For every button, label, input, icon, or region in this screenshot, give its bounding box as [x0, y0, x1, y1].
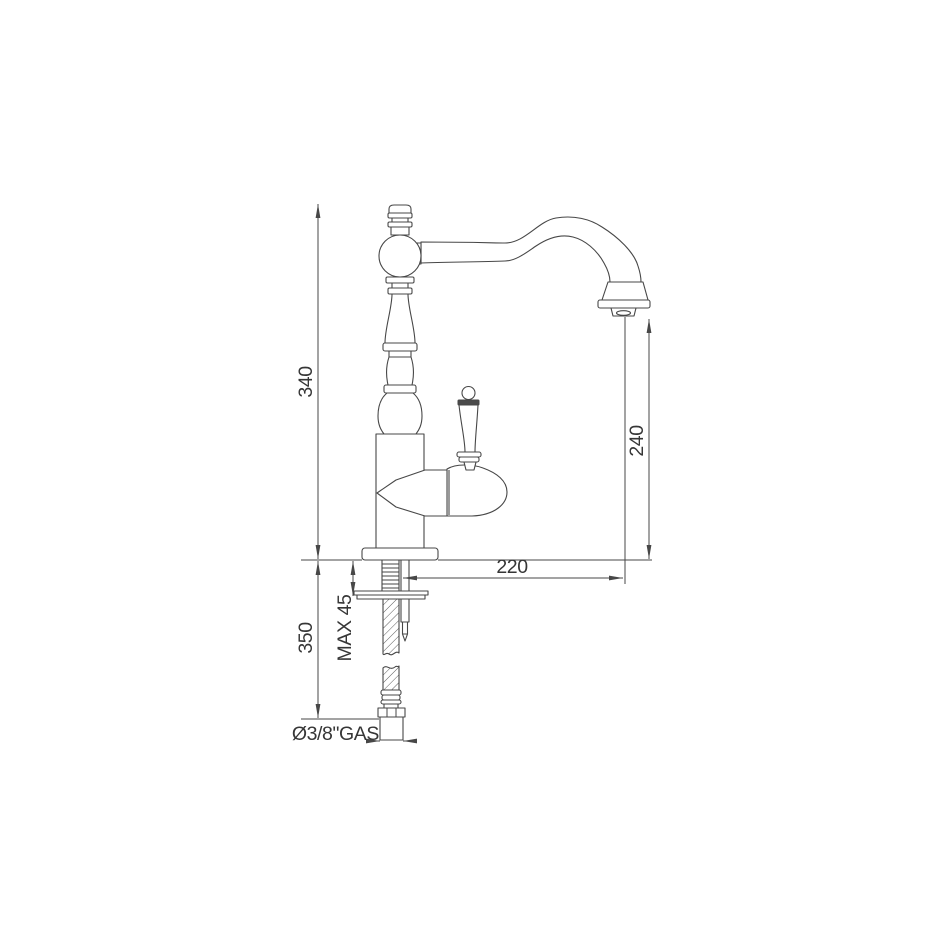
under-counter-assembly	[354, 560, 428, 740]
threaded-shank	[382, 560, 399, 591]
mounting-stud	[401, 560, 409, 641]
finial-cap	[389, 205, 411, 213]
finial-ring	[388, 222, 412, 227]
hex-nut	[378, 708, 405, 717]
column-ring	[388, 288, 412, 294]
column-ring	[384, 385, 416, 393]
gas-connector	[380, 717, 403, 740]
handle-stem	[464, 462, 476, 470]
label-spout-reach: 220	[496, 556, 528, 578]
valve-cap	[447, 465, 507, 516]
column-neck	[389, 351, 411, 357]
handle-collar	[459, 457, 479, 462]
handle-knob	[462, 387, 475, 400]
spout	[421, 217, 650, 316]
handle-lever	[459, 405, 478, 452]
column-bulge	[378, 393, 422, 434]
spout-outlet-cone	[602, 282, 648, 300]
label-connection-size: Ø3/8"GAS	[292, 723, 380, 745]
finial-neck	[392, 218, 408, 222]
hose-crimp	[381, 690, 401, 708]
label-under-counter-length: 350	[295, 622, 317, 654]
column-vase-lower	[387, 357, 414, 385]
column-vase-upper	[385, 294, 415, 343]
label-max-counter-thickness: MAX 45	[334, 594, 356, 662]
column-ball	[379, 235, 421, 277]
faucet-diagram: 340 350 MAX 45 220 240 Ø3/8"GAS	[0, 0, 950, 950]
finial-neck	[391, 227, 409, 235]
finial-ring	[388, 213, 412, 218]
handle-ring	[458, 400, 479, 405]
column-neck	[392, 283, 408, 288]
label-spout-outlet-height: 240	[626, 425, 648, 457]
technical-drawing-canvas: 340 350 MAX 45 220 240 Ø3/8"GAS	[0, 0, 950, 950]
base-flange	[362, 548, 438, 560]
spout-outlet-flange	[598, 300, 650, 308]
spout-curve	[421, 217, 641, 282]
label-total-height: 340	[295, 366, 317, 398]
column-ring	[386, 277, 414, 283]
handle-collar	[457, 452, 481, 457]
supply-hose-upper	[383, 599, 399, 655]
mounting-washer-plate	[354, 591, 428, 599]
column-ring	[383, 343, 417, 351]
supply-hose-lower	[383, 666, 399, 690]
